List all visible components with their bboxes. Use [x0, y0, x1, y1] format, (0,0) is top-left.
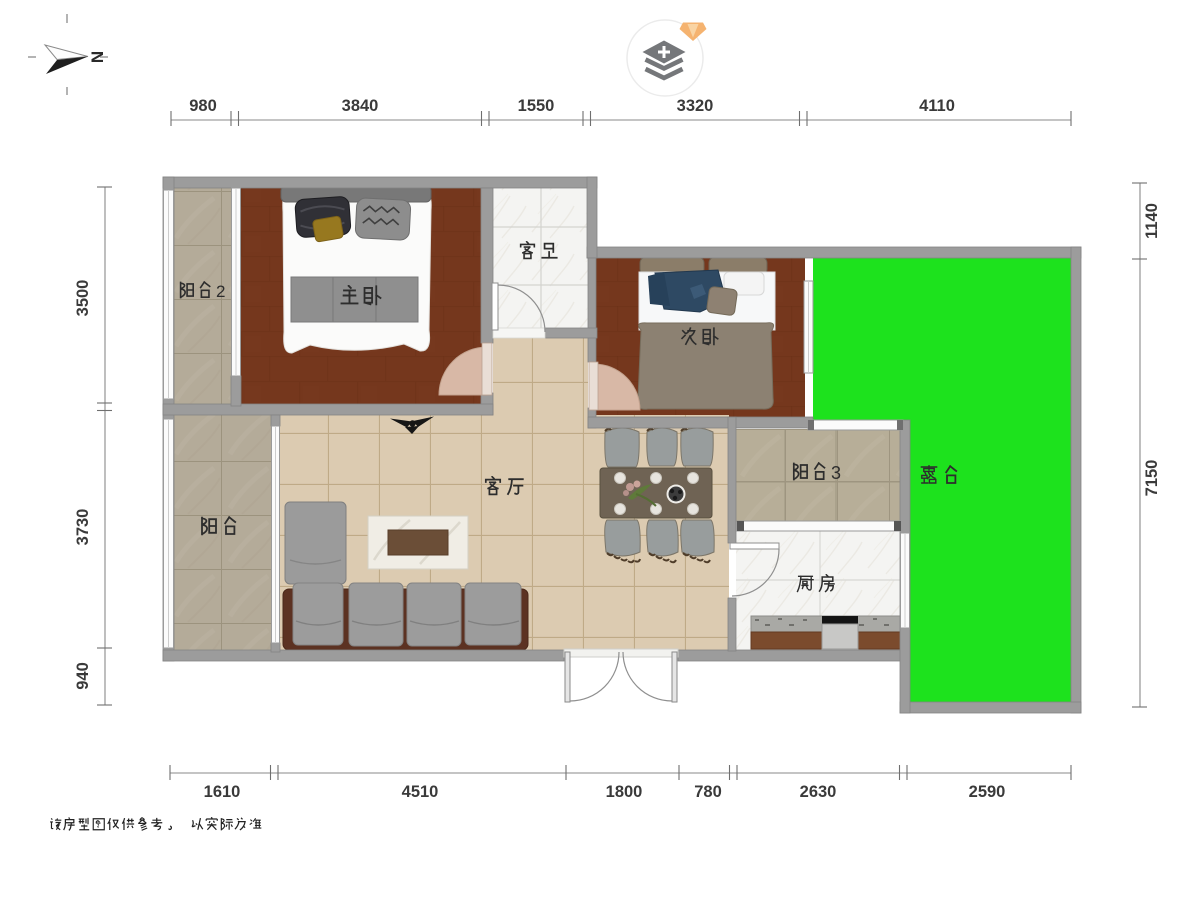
svg-text:780: 780 [694, 783, 722, 801]
svg-text:3840: 3840 [342, 97, 379, 115]
svg-text:2630: 2630 [800, 783, 837, 801]
svg-text:940: 940 [74, 662, 92, 690]
svg-text:3: 3 [831, 463, 841, 483]
svg-text:2: 2 [216, 282, 225, 301]
svg-text:1550: 1550 [518, 97, 555, 115]
svg-text:4510: 4510 [402, 783, 439, 801]
svg-text:980: 980 [189, 97, 217, 115]
svg-text:7150: 7150 [1143, 460, 1161, 497]
svg-text:2590: 2590 [969, 783, 1006, 801]
svg-text:1800: 1800 [606, 783, 643, 801]
svg-text:3730: 3730 [74, 509, 92, 546]
svg-text:3500: 3500 [74, 280, 92, 317]
svg-text:1140: 1140 [1143, 203, 1161, 239]
svg-text:1610: 1610 [204, 783, 241, 801]
svg-text:4110: 4110 [919, 97, 955, 115]
svg-text:3320: 3320 [677, 97, 714, 115]
svg-text:N: N [88, 51, 107, 63]
